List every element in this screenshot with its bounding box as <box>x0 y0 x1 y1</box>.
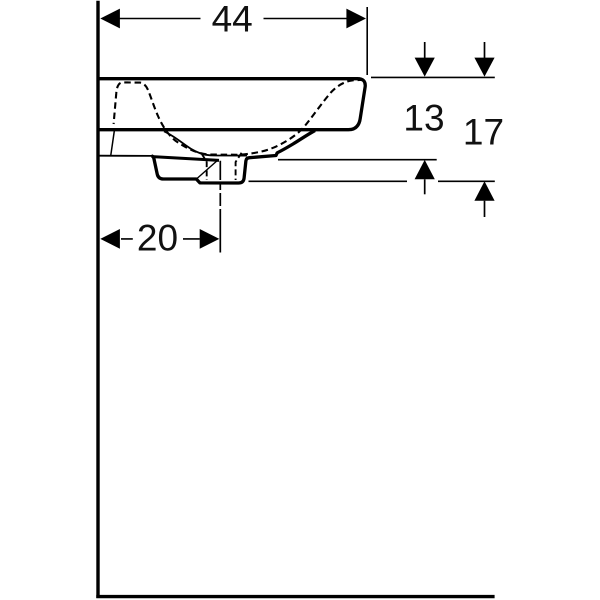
svg-text:44: 44 <box>212 0 253 40</box>
svg-text:13: 13 <box>403 97 444 138</box>
svg-text:20: 20 <box>137 217 178 258</box>
svg-text:17: 17 <box>463 112 504 153</box>
